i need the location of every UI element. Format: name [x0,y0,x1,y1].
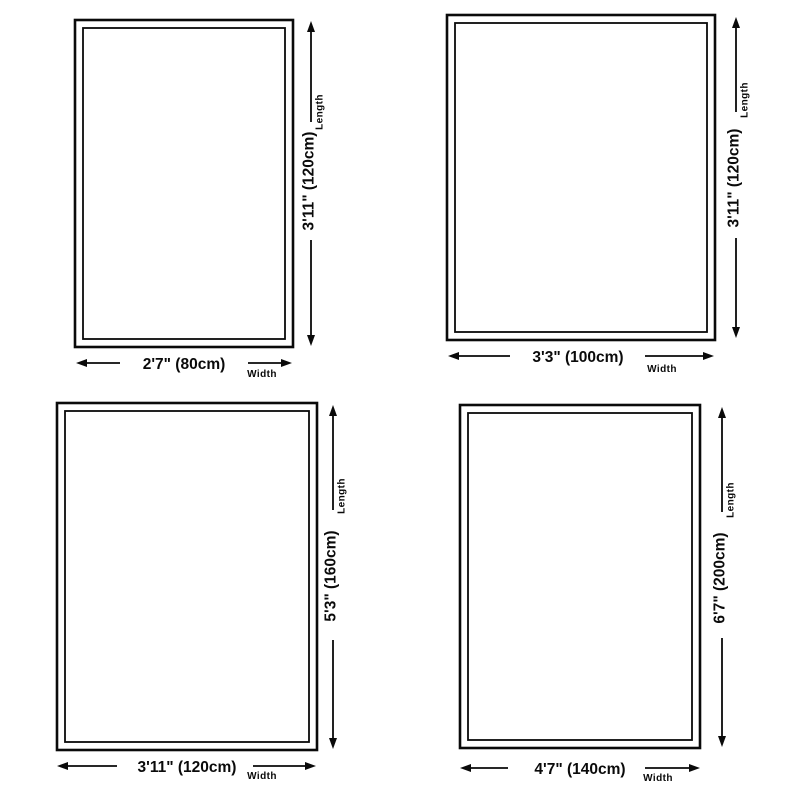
arrow-right-icon [689,764,700,772]
length-caption: Length [315,94,326,130]
width-value-label: 4'7" (140cm) [534,761,625,778]
size-diagram-80x120-svg: 3'11" (120cm) Length 2'7" (80cm) Width [0,0,400,400]
size-chart-sheet: 3'11" (120cm) Length 2'7" (80cm) Width 3… [0,0,800,800]
arrow-left-icon [57,762,68,770]
length-value-label: 6'7" (200cm) [712,532,729,623]
size-diagram-100x120: 3'11" (120cm) Length 3'3" (100cm) Width [400,0,800,400]
width-caption: Width [643,773,673,784]
rug-outline [57,403,317,750]
arrow-left-icon [448,352,459,360]
width-value-label: 3'3" (100cm) [532,349,623,366]
arrow-down-icon [329,738,337,749]
width-value-label: 3'11" (120cm) [138,759,237,776]
arrow-right-icon [281,359,292,367]
rug-outline [447,15,715,340]
arrow-right-icon [703,352,714,360]
size-diagram-140x200: 6'7" (200cm) Length 4'7" (140cm) Width [400,400,800,800]
length-caption: Length [726,482,737,518]
arrow-down-icon [307,335,315,346]
width-caption: Width [247,369,277,380]
size-diagram-140x200-svg: 6'7" (200cm) Length 4'7" (140cm) Width [400,400,800,800]
length-value-label: 3'11" (120cm) [301,132,318,231]
size-diagram-100x120-svg: 3'11" (120cm) Length 3'3" (100cm) Width [400,0,800,400]
width-caption: Width [247,771,277,782]
arrow-left-icon [76,359,87,367]
size-diagram-80x120: 3'11" (120cm) Length 2'7" (80cm) Width [0,0,400,400]
rug-outline [75,20,293,347]
width-caption: Width [647,364,677,375]
rug-outline [460,405,700,748]
length-value-label: 5'3" (160cm) [323,530,340,621]
length-value-label: 3'11" (120cm) [726,129,743,228]
arrow-up-icon [718,407,726,418]
arrow-up-icon [329,405,337,416]
arrow-up-icon [732,17,740,28]
size-diagram-120x160: 5'3" (160cm) Length 3'11" (120cm) Width [0,400,400,800]
length-caption: Length [740,82,751,118]
size-diagram-120x160-svg: 5'3" (160cm) Length 3'11" (120cm) Width [0,400,400,800]
arrow-up-icon [307,21,315,32]
width-value-label: 2'7" (80cm) [143,356,226,373]
length-caption: Length [337,478,348,514]
arrow-down-icon [718,736,726,747]
arrow-left-icon [460,764,471,772]
arrow-down-icon [732,327,740,338]
arrow-right-icon [305,762,316,770]
